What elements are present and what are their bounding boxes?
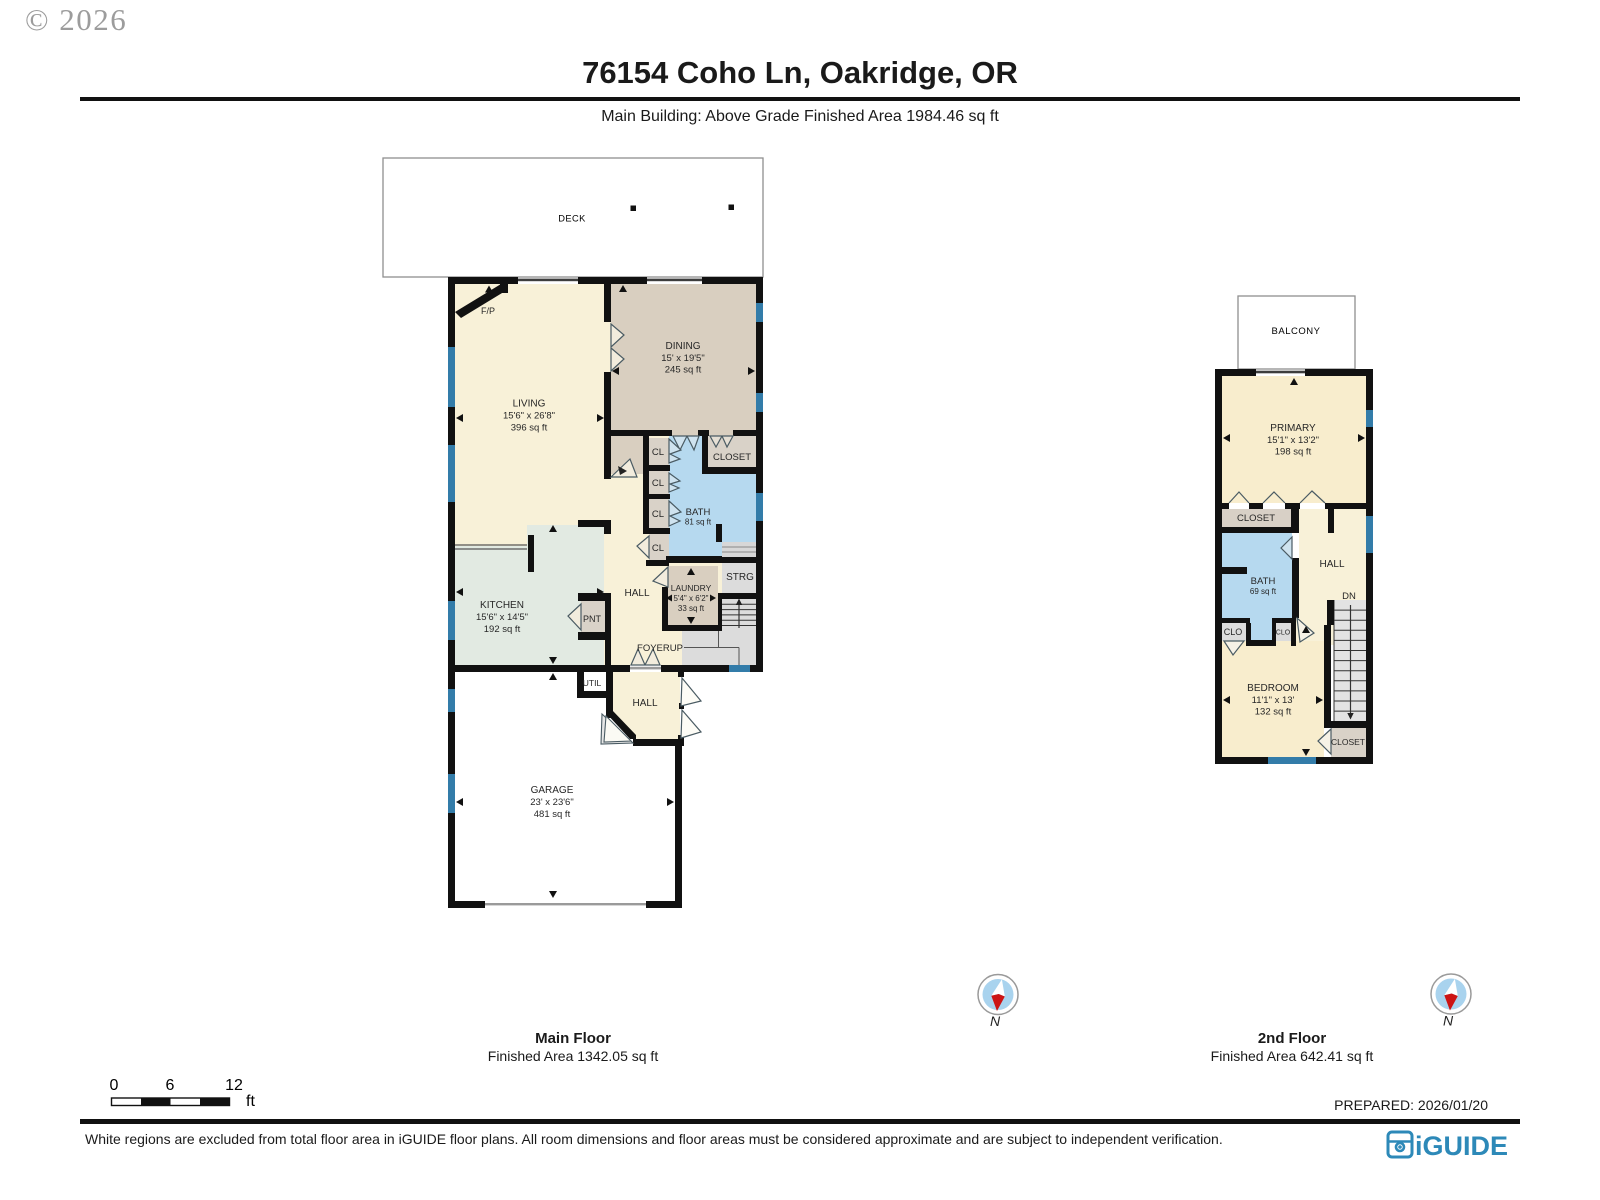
svg-text:PNT: PNT [583, 614, 602, 624]
svg-text:KITCHEN: KITCHEN [480, 600, 524, 611]
svg-text:11'1" x 13': 11'1" x 13' [1252, 695, 1295, 706]
svg-text:ft: ft [246, 1093, 255, 1110]
svg-text:0: 0 [110, 1077, 119, 1094]
svg-text:LAUNDRY: LAUNDRY [671, 583, 712, 593]
svg-text:N: N [1443, 1013, 1454, 1029]
svg-text:N: N [990, 1013, 1001, 1029]
svg-text:DINING: DINING [666, 341, 701, 352]
svg-text:192 sq ft: 192 sq ft [484, 624, 521, 635]
svg-text:F/P: F/P [481, 306, 495, 316]
svg-text:PRIMARY: PRIMARY [1270, 423, 1316, 434]
svg-text:23' x 23'6": 23' x 23'6" [530, 797, 573, 808]
svg-text:481 sq ft: 481 sq ft [534, 809, 571, 820]
svg-text:HALL: HALL [632, 698, 657, 709]
svg-text:STRG: STRG [726, 572, 754, 583]
svg-text:DN: DN [1342, 591, 1356, 602]
svg-text:81 sq ft: 81 sq ft [685, 518, 712, 527]
svg-text:HALL: HALL [624, 588, 649, 599]
svg-text:CL: CL [652, 447, 664, 458]
svg-text:CLO: CLO [1276, 630, 1291, 637]
svg-text:198 sq ft: 198 sq ft [1275, 447, 1312, 458]
svg-text:6: 6 [166, 1077, 175, 1094]
svg-text:DECK: DECK [558, 214, 586, 224]
svg-text:CLOSET: CLOSET [713, 452, 751, 463]
svg-text:BATH: BATH [1251, 576, 1276, 587]
svg-text:HALL: HALL [1319, 559, 1344, 570]
svg-text:CL: CL [652, 543, 664, 554]
svg-text:15'6" x 26'8": 15'6" x 26'8" [503, 411, 555, 422]
svg-text:CLOSET: CLOSET [1331, 737, 1365, 747]
svg-text:15' x 19'5": 15' x 19'5" [661, 353, 704, 364]
svg-text:CL: CL [652, 478, 664, 489]
svg-text:UTIL: UTIL [583, 678, 602, 688]
svg-text:15'1" x 13'2": 15'1" x 13'2" [1267, 435, 1319, 446]
svg-text:69 sq ft: 69 sq ft [1250, 587, 1277, 596]
svg-text:CLOSET: CLOSET [1237, 513, 1275, 524]
svg-text:BALCONY: BALCONY [1272, 326, 1321, 337]
svg-text:LIVING: LIVING [513, 399, 546, 410]
svg-text:132 sq ft: 132 sq ft [1255, 707, 1292, 718]
svg-text:CL: CL [652, 509, 664, 520]
svg-text:FOYERUP: FOYERUP [637, 643, 683, 654]
svg-text:GARAGE: GARAGE [531, 785, 574, 796]
svg-text:BEDROOM: BEDROOM [1247, 683, 1299, 694]
svg-text:15'6" x 14'5": 15'6" x 14'5" [476, 612, 528, 623]
svg-text:5'4" x 6'2": 5'4" x 6'2" [674, 594, 709, 603]
svg-text:33 sq ft: 33 sq ft [678, 604, 705, 613]
svg-text:396 sq ft: 396 sq ft [511, 423, 548, 434]
svg-text:CLO: CLO [1224, 627, 1243, 637]
svg-text:245 sq ft: 245 sq ft [665, 365, 702, 376]
svg-text:iGUIDE: iGUIDE [1415, 1131, 1508, 1161]
svg-text:BATH: BATH [686, 507, 711, 518]
svg-text:12: 12 [225, 1077, 243, 1094]
